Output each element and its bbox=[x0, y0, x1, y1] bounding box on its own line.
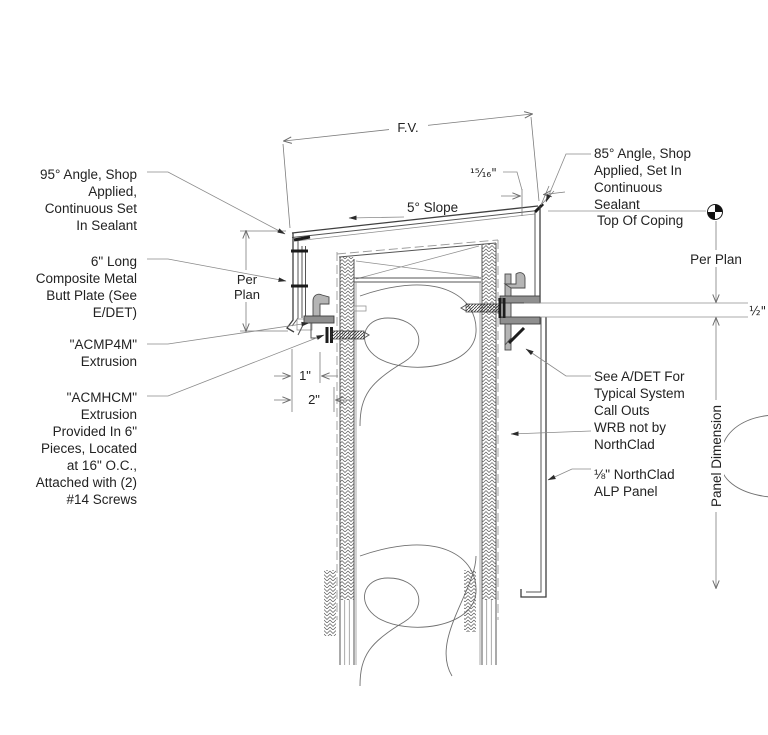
elevation-target-icon bbox=[708, 205, 723, 220]
acmp4m-line2: Extrusion bbox=[81, 354, 137, 369]
alp-panel-line1: ⅛" NorthClad bbox=[594, 467, 675, 482]
acmhcm-line3: Provided In 6" bbox=[53, 424, 138, 439]
annotation-acmp4m: "ACMP4M" Extrusion bbox=[70, 337, 138, 369]
acmp4m-line1: "ACMP4M" bbox=[70, 337, 138, 352]
acmhcm-line1: "ACMHCM" bbox=[67, 390, 138, 405]
dim-gap-label: ½" bbox=[749, 304, 766, 318]
butt-plate-line2: Composite Metal bbox=[36, 271, 137, 286]
acmhcm-line2: Extrusion bbox=[81, 407, 137, 422]
acmhcm-line4: Pieces, Located bbox=[41, 441, 137, 456]
leader-angle95 bbox=[147, 172, 285, 234]
per-plan-left-line1: Per bbox=[237, 272, 258, 287]
annotation-alp-panel: ⅛" NorthClad ALP Panel bbox=[594, 467, 675, 499]
dim-1in-label: 1" bbox=[299, 368, 311, 383]
slope-label: 5° Slope bbox=[407, 200, 458, 215]
butt-plate-line3: Butt Plate (See bbox=[46, 288, 137, 303]
sheathing-hatch-left bbox=[340, 257, 354, 600]
top-x-bracing bbox=[356, 246, 479, 279]
acmhcm-line7: #14 Screws bbox=[66, 492, 137, 507]
leader-see-adet bbox=[526, 349, 591, 376]
annotation-wrb: WRB not by NorthClad bbox=[594, 420, 666, 452]
acmp4m-clip bbox=[298, 294, 334, 338]
coping-detail-drawing: F.V. 5° Slope ¹⁵⁄₁₆" Per Plan 1" 2" bbox=[0, 0, 768, 735]
angle95-line1: 95° Angle, Shop bbox=[40, 167, 137, 182]
batt-insulation bbox=[360, 285, 768, 686]
dim-coping-offset-label: ¹⁵⁄₁₆" bbox=[470, 166, 497, 180]
angle-85-piece bbox=[535, 204, 543, 212]
angle95-line4: In Sealant bbox=[76, 218, 137, 233]
angle85-line3: Continuous bbox=[594, 180, 663, 195]
see-adet-line1: See A/DET For bbox=[594, 369, 685, 384]
angle85-line4: Sealant bbox=[594, 197, 640, 212]
annotation-see-adet: See A/DET For Typical System Call Outs bbox=[594, 369, 685, 418]
leader-alp-panel bbox=[548, 469, 591, 480]
acmhcm-line6: Attached with (2) bbox=[36, 475, 137, 490]
per-plan-right-label: Per Plan bbox=[690, 252, 742, 267]
detail-drawing-canvas: F.V. 5° Slope ¹⁵⁄₁₆" Per Plan 1" 2" bbox=[0, 0, 768, 735]
wrb-line2: NorthClad bbox=[594, 437, 655, 452]
dim-slope: 5° Slope bbox=[349, 200, 458, 218]
panel-dimension-label: Panel Dimension bbox=[709, 405, 724, 507]
annotation-butt-plate: 6" Long Composite Metal Butt Plate (See … bbox=[36, 254, 137, 320]
angle85-line1: 85° Angle, Shop bbox=[594, 146, 691, 161]
leader-angle85 bbox=[546, 154, 591, 202]
top-track bbox=[354, 278, 481, 282]
annotation-angle85: 85° Angle, Shop Applied, Set In Continuo… bbox=[594, 146, 691, 212]
annotation-angle95: 95° Angle, Shop Applied, Continuous Set … bbox=[40, 167, 137, 233]
dim-fv-label: F.V. bbox=[397, 120, 418, 135]
see-adet-line3: Call Outs bbox=[594, 403, 650, 418]
angle95-line2: Applied, bbox=[88, 184, 137, 199]
butt-plate-line4: E/DET) bbox=[93, 305, 137, 320]
per-plan-left-line2: Plan bbox=[234, 287, 260, 302]
wrb-line1: WRB not by bbox=[594, 420, 666, 435]
stud-lines bbox=[356, 282, 480, 665]
coping-left-face bbox=[287, 233, 294, 332]
acmhcm-line5: at 16" O.C., bbox=[67, 458, 137, 473]
dim-2in-label: 2" bbox=[308, 392, 320, 407]
break-hatch-left bbox=[324, 570, 336, 636]
dim-per-plan-right: Per Plan bbox=[688, 221, 744, 302]
panel-clip-right bbox=[500, 273, 540, 350]
leader-acmp4m bbox=[147, 323, 309, 344]
angle85-line2: Applied, Set In bbox=[594, 163, 682, 178]
annotation-acmhcm: "ACMHCM" Extrusion Provided In 6" Pieces… bbox=[36, 390, 138, 507]
leader-wrb bbox=[511, 431, 591, 434]
leader-butt-plate bbox=[147, 259, 286, 281]
leader-acmhcm bbox=[147, 335, 324, 396]
alp-panel bbox=[521, 317, 546, 597]
dim-panel-dimension: Panel Dimension bbox=[707, 318, 724, 588]
break-hatch-right bbox=[464, 570, 476, 632]
top-of-coping-label: Top Of Coping bbox=[597, 213, 683, 228]
angle95-line3: Continuous Set bbox=[45, 201, 138, 216]
alp-panel-line2: ALP Panel bbox=[594, 484, 658, 499]
see-adet-line2: Typical System bbox=[594, 386, 685, 401]
butt-plate-line1: 6" Long bbox=[91, 254, 137, 269]
butt-plate-lines bbox=[302, 246, 306, 318]
dim-per-plan-left: Per Plan bbox=[231, 231, 288, 331]
sheathing-hatch-right bbox=[482, 244, 496, 600]
wall-top-plate bbox=[339, 243, 496, 257]
